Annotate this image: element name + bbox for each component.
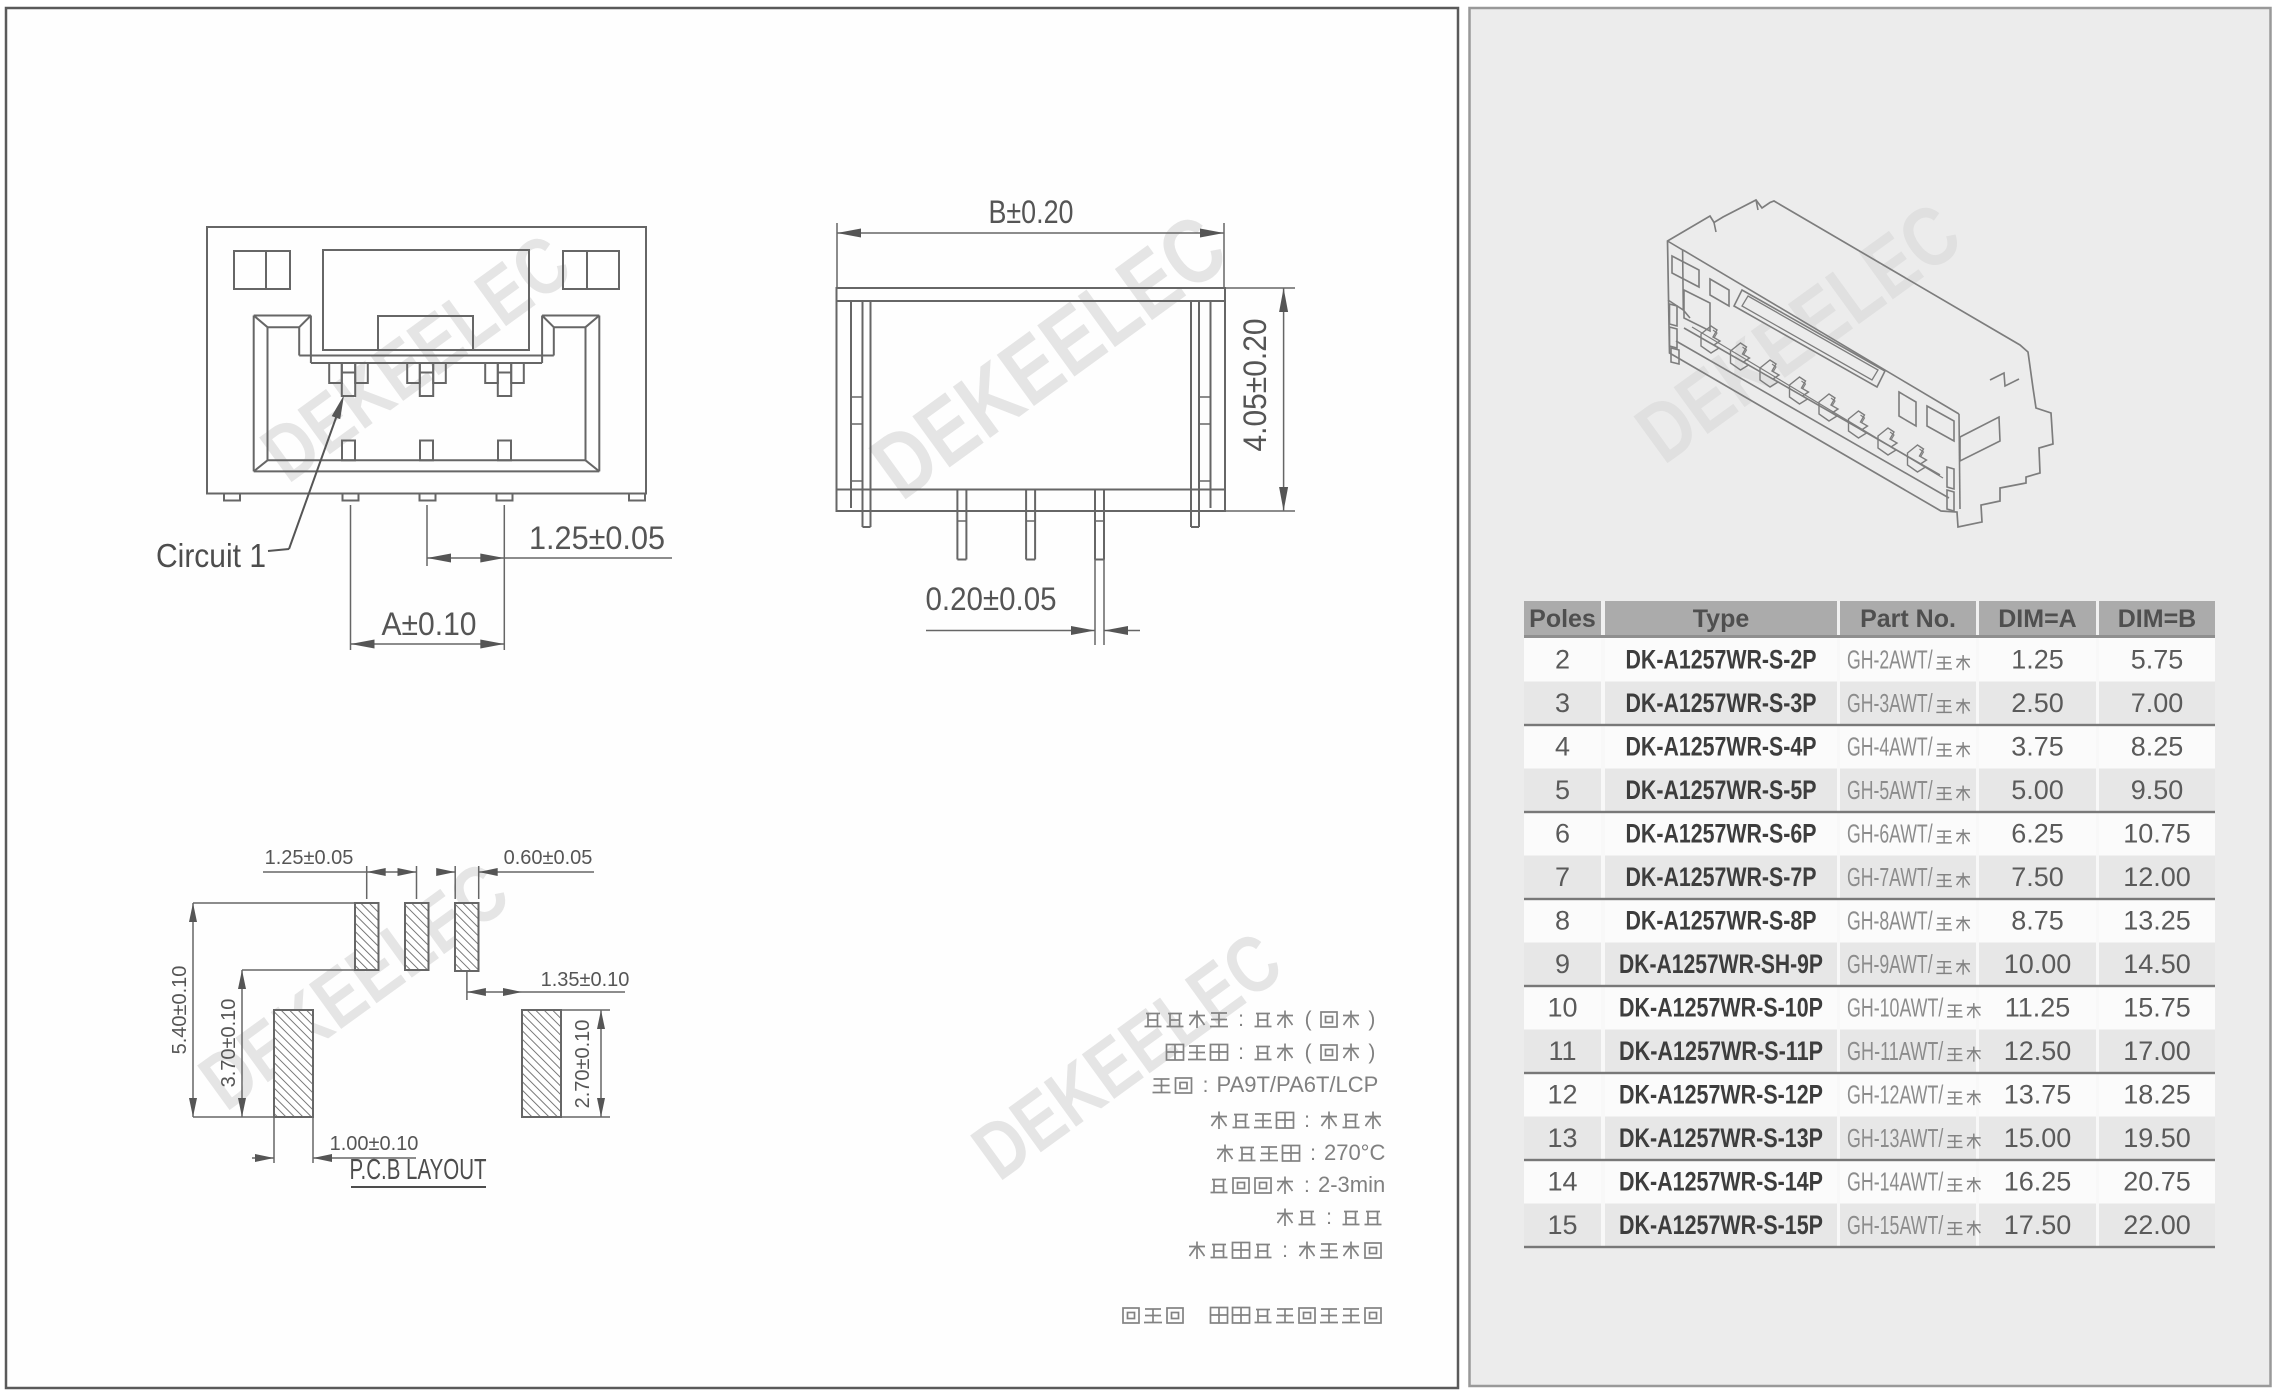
svg-text:13.75: 13.75 bbox=[2004, 1080, 2072, 1110]
svg-text:1.25±0.05: 1.25±0.05 bbox=[265, 847, 354, 869]
svg-text:13.25: 13.25 bbox=[2123, 906, 2191, 936]
svg-text:1.25: 1.25 bbox=[2011, 645, 2064, 675]
svg-text::: : bbox=[1238, 1041, 1244, 1064]
svg-text:GH-15AWT/: GH-15AWT/ bbox=[1847, 1210, 1944, 1240]
svg-text:15.00: 15.00 bbox=[2004, 1123, 2072, 1153]
svg-text:GH-13AWT/: GH-13AWT/ bbox=[1847, 1123, 1944, 1153]
svg-text:DK-A1257WR-SH-9P: DK-A1257WR-SH-9P bbox=[1619, 949, 1823, 979]
svg-text:DK-A1257WR-S-11P: DK-A1257WR-S-11P bbox=[1619, 1036, 1823, 1066]
svg-text:15.75: 15.75 bbox=[2123, 993, 2191, 1023]
svg-text:A±0.10: A±0.10 bbox=[382, 606, 477, 642]
svg-text:): ) bbox=[1368, 1008, 1375, 1031]
svg-text:GH-4AWT/: GH-4AWT/ bbox=[1847, 732, 1933, 762]
svg-text:7.00: 7.00 bbox=[2131, 688, 2184, 718]
svg-text:(: ( bbox=[1305, 1008, 1312, 1031]
svg-text:14: 14 bbox=[1547, 1167, 1577, 1197]
svg-text:GH-8AWT/: GH-8AWT/ bbox=[1847, 906, 1933, 936]
svg-text:Poles: Poles bbox=[1529, 605, 1596, 633]
svg-text:DK-A1257WR-S-15P: DK-A1257WR-S-15P bbox=[1619, 1210, 1823, 1240]
svg-text:9: 9 bbox=[1555, 949, 1570, 979]
svg-text:GH-7AWT/: GH-7AWT/ bbox=[1847, 862, 1933, 892]
svg-text:4: 4 bbox=[1555, 732, 1570, 762]
svg-text:7.50: 7.50 bbox=[2011, 862, 2064, 892]
svg-text:15: 15 bbox=[1547, 1210, 1577, 1240]
svg-text:3.75: 3.75 bbox=[2011, 732, 2064, 762]
svg-text:12.00: 12.00 bbox=[2123, 862, 2191, 892]
svg-text::: : bbox=[1238, 1008, 1244, 1031]
svg-text:5.75: 5.75 bbox=[2131, 645, 2184, 675]
svg-text:DK-A1257WR-S-4P: DK-A1257WR-S-4P bbox=[1626, 732, 1817, 762]
svg-text:): ) bbox=[1368, 1041, 1375, 1064]
svg-text:GH-14AWT/: GH-14AWT/ bbox=[1847, 1167, 1944, 1197]
svg-text:3: 3 bbox=[1555, 688, 1570, 718]
svg-text:Type: Type bbox=[1693, 605, 1750, 633]
svg-text::: : bbox=[1304, 1109, 1310, 1132]
svg-text:DK-A1257WR-S-2P: DK-A1257WR-S-2P bbox=[1626, 645, 1817, 675]
svg-text:2.50: 2.50 bbox=[2011, 688, 2064, 718]
svg-text:GH-12AWT/: GH-12AWT/ bbox=[1847, 1080, 1944, 1110]
svg-text:2-3min: 2-3min bbox=[1318, 1172, 1385, 1197]
svg-text:GH-9AWT/: GH-9AWT/ bbox=[1847, 949, 1933, 979]
svg-text:11.25: 11.25 bbox=[2005, 993, 2071, 1023]
svg-text:0.20±0.05: 0.20±0.05 bbox=[926, 581, 1057, 617]
svg-text:DIM=B: DIM=B bbox=[2118, 605, 2196, 633]
svg-text:DK-A1257WR-S-3P: DK-A1257WR-S-3P bbox=[1626, 688, 1817, 718]
svg-text:12: 12 bbox=[1547, 1080, 1577, 1110]
svg-text:GH-6AWT/: GH-6AWT/ bbox=[1847, 819, 1933, 849]
svg-text:20.75: 20.75 bbox=[2123, 1167, 2191, 1197]
svg-text:DK-A1257WR-S-6P: DK-A1257WR-S-6P bbox=[1626, 819, 1817, 849]
svg-text:P.C.B LAYOUT: P.C.B LAYOUT bbox=[350, 1154, 487, 1186]
svg-text:6.25: 6.25 bbox=[2011, 819, 2064, 849]
svg-text:10.75: 10.75 bbox=[2123, 819, 2191, 849]
svg-text::: : bbox=[1326, 1206, 1332, 1229]
svg-text:DK-A1257WR-S-7P: DK-A1257WR-S-7P bbox=[1626, 862, 1817, 892]
svg-text:22.00: 22.00 bbox=[2123, 1210, 2191, 1240]
svg-text:GH-11AWT/: GH-11AWT/ bbox=[1847, 1036, 1944, 1066]
svg-text:6: 6 bbox=[1555, 819, 1570, 849]
svg-text:8.25: 8.25 bbox=[2131, 732, 2184, 762]
svg-text:10: 10 bbox=[1547, 993, 1577, 1023]
svg-text:10.00: 10.00 bbox=[2004, 949, 2072, 979]
svg-text:4.05±0.20: 4.05±0.20 bbox=[1237, 319, 1273, 452]
svg-text:PA9T/PA6T/LCP: PA9T/PA6T/LCP bbox=[1217, 1072, 1379, 1097]
svg-text:5.40±0.10: 5.40±0.10 bbox=[169, 966, 191, 1055]
svg-text:12.50: 12.50 bbox=[2004, 1036, 2072, 1066]
svg-text:GH-5AWT/: GH-5AWT/ bbox=[1847, 775, 1933, 805]
svg-text:9.50: 9.50 bbox=[2131, 775, 2184, 805]
svg-text:1.00±0.10: 1.00±0.10 bbox=[330, 1133, 419, 1155]
svg-text:16.25: 16.25 bbox=[2004, 1167, 2072, 1197]
svg-text:DIM=A: DIM=A bbox=[1998, 605, 2076, 633]
svg-text::: : bbox=[1310, 1142, 1316, 1165]
svg-text:17.00: 17.00 bbox=[2123, 1036, 2191, 1066]
svg-text:Part No.: Part No. bbox=[1860, 605, 1956, 633]
svg-text:2: 2 bbox=[1555, 645, 1570, 675]
svg-text:0.60±0.05: 0.60±0.05 bbox=[504, 847, 593, 869]
svg-text:DK-A1257WR-S-12P: DK-A1257WR-S-12P bbox=[1619, 1080, 1823, 1110]
svg-text:GH-10AWT/: GH-10AWT/ bbox=[1847, 993, 1944, 1023]
svg-text:19.50: 19.50 bbox=[2123, 1123, 2191, 1153]
svg-text:GH-2AWT/: GH-2AWT/ bbox=[1847, 645, 1933, 675]
svg-text:18.25: 18.25 bbox=[2123, 1080, 2191, 1110]
svg-text::: : bbox=[1203, 1074, 1209, 1097]
svg-text:17.50: 17.50 bbox=[2004, 1210, 2072, 1240]
svg-text:1.35±0.10: 1.35±0.10 bbox=[541, 969, 630, 991]
svg-text:DK-A1257WR-S-8P: DK-A1257WR-S-8P bbox=[1626, 906, 1817, 936]
svg-text:DK-A1257WR-S-5P: DK-A1257WR-S-5P bbox=[1626, 775, 1817, 805]
svg-text:270°C: 270°C bbox=[1324, 1140, 1386, 1165]
svg-text:5.00: 5.00 bbox=[2011, 775, 2064, 805]
svg-text:GH-3AWT/: GH-3AWT/ bbox=[1847, 688, 1933, 718]
svg-text:14.50: 14.50 bbox=[2123, 949, 2191, 979]
svg-text:5: 5 bbox=[1555, 775, 1570, 805]
svg-text:2.70±0.10: 2.70±0.10 bbox=[572, 1020, 594, 1109]
svg-text:7: 7 bbox=[1555, 862, 1570, 892]
svg-text::: : bbox=[1282, 1239, 1288, 1262]
svg-text:3.70±0.10: 3.70±0.10 bbox=[218, 999, 240, 1088]
svg-text:B±0.20: B±0.20 bbox=[989, 194, 1074, 230]
svg-text:8.75: 8.75 bbox=[2011, 906, 2064, 936]
svg-text:11: 11 bbox=[1548, 1036, 1576, 1066]
svg-text:8: 8 bbox=[1555, 906, 1570, 936]
svg-text:(: ( bbox=[1305, 1041, 1312, 1064]
svg-text:13: 13 bbox=[1547, 1123, 1577, 1153]
svg-text:1.25±0.05: 1.25±0.05 bbox=[529, 520, 665, 556]
svg-text:DK-A1257WR-S-13P: DK-A1257WR-S-13P bbox=[1619, 1123, 1823, 1153]
svg-text:DK-A1257WR-S-14P: DK-A1257WR-S-14P bbox=[1619, 1167, 1823, 1197]
svg-text:Circuit 1: Circuit 1 bbox=[156, 537, 266, 574]
svg-text::: : bbox=[1304, 1174, 1310, 1197]
svg-text:DK-A1257WR-S-10P: DK-A1257WR-S-10P bbox=[1619, 993, 1823, 1023]
